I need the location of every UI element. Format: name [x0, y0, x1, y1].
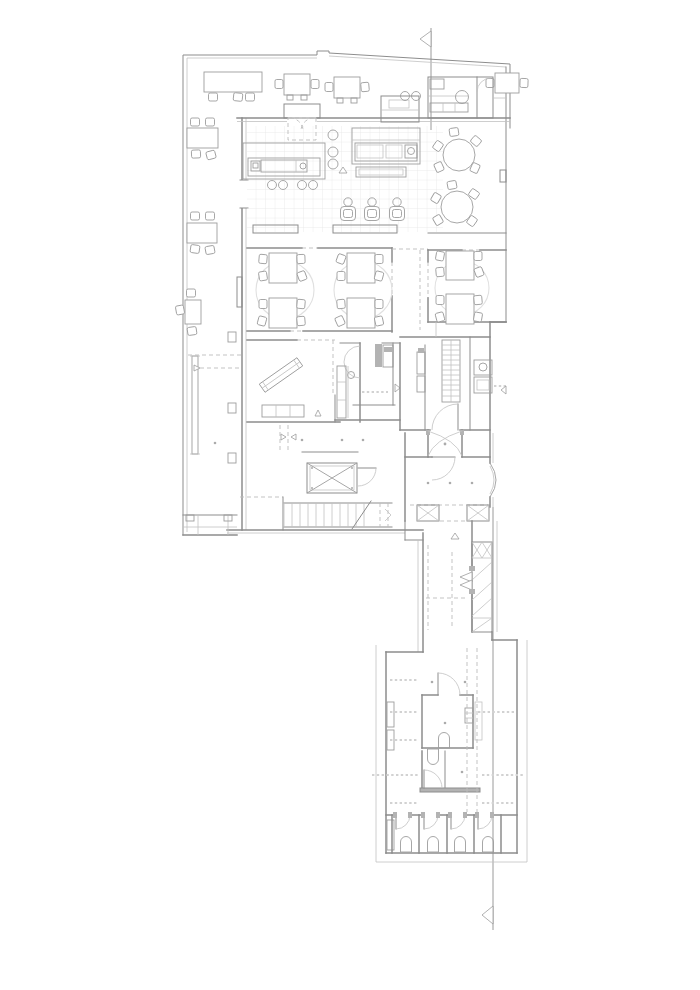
- dining-group-1: [256, 253, 314, 328]
- wc-stalls: [386, 812, 517, 853]
- terrace-tables-left: [175, 118, 218, 336]
- veranda-boundary: [183, 51, 510, 535]
- lounge-room: [247, 340, 340, 422]
- utility-room: [400, 322, 508, 430]
- vestibule: [426, 430, 464, 457]
- staircase: [284, 501, 392, 529]
- section-marker-top: [420, 28, 431, 130]
- dining-group-3: [435, 251, 489, 324]
- dining-group-2: [334, 253, 392, 328]
- entrance-hall: [405, 433, 496, 540]
- annex-wing: [372, 632, 527, 862]
- section-marker-bottom: [482, 507, 493, 930]
- floor-plan-canvas: [0, 0, 700, 990]
- bar-service-rooms: [335, 343, 400, 422]
- terrace-details: [188, 332, 242, 463]
- kitchen-area: [243, 96, 443, 233]
- corridor: [418, 521, 497, 652]
